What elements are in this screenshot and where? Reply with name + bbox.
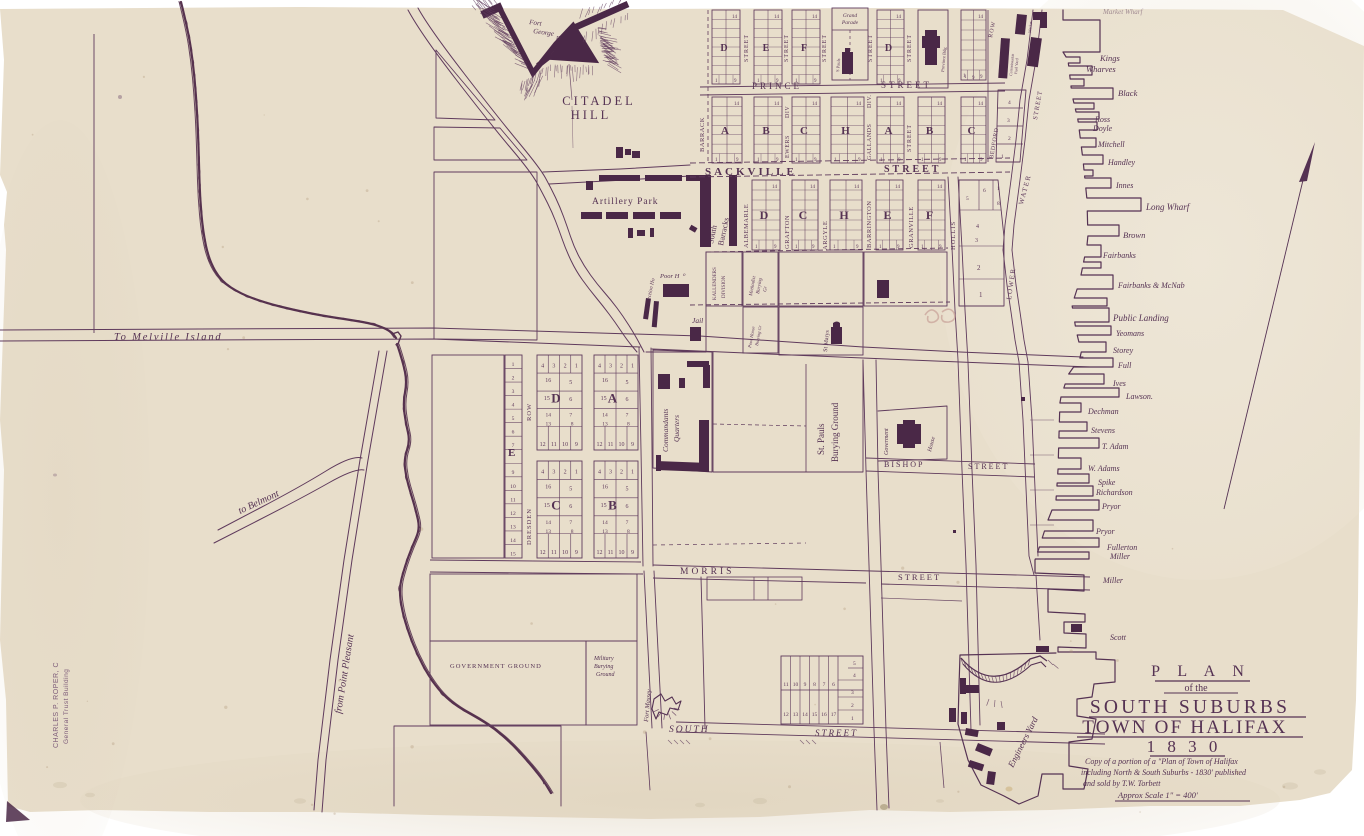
svg-text:5: 5: [512, 416, 515, 422]
svg-text:Goverment: Goverment: [884, 428, 890, 455]
svg-text:Brown: Brown: [1123, 230, 1145, 240]
svg-text:10: 10: [510, 484, 516, 490]
svg-text:Dechman: Dechman: [1087, 407, 1119, 416]
svg-text:2: 2: [620, 470, 623, 476]
svg-text:14: 14: [896, 15, 902, 20]
svg-text:13: 13: [793, 712, 799, 718]
svg-text:16: 16: [602, 378, 608, 384]
svg-text:16: 16: [821, 712, 827, 718]
svg-text:1: 1: [979, 291, 983, 299]
svg-text:3: 3: [512, 389, 515, 395]
svg-text:12: 12: [510, 511, 516, 517]
svg-text:4: 4: [541, 470, 544, 476]
svg-text:Ground: Ground: [596, 672, 615, 678]
svg-text:Scott: Scott: [1110, 633, 1127, 642]
svg-text:Miller: Miller: [1102, 576, 1124, 585]
svg-text:Approx Scale 1" = 400': Approx Scale 1" = 400': [1117, 790, 1198, 800]
svg-text:14: 14: [772, 185, 778, 190]
svg-text:9: 9: [575, 550, 578, 556]
svg-text:14: 14: [774, 15, 780, 20]
svg-text:10: 10: [562, 550, 568, 556]
svg-text:A: A: [885, 125, 893, 137]
svg-text:ARGYLE: ARGYLE: [822, 221, 829, 250]
svg-text:9: 9: [804, 682, 807, 688]
svg-text:16: 16: [545, 484, 551, 490]
svg-text:13: 13: [602, 421, 608, 427]
svg-text:DIV: DIV: [785, 106, 791, 118]
svg-text:DIV.: DIV.: [867, 95, 873, 108]
svg-text:2: 2: [851, 703, 854, 709]
svg-text:10: 10: [619, 550, 625, 556]
svg-text:H: H: [841, 125, 850, 137]
svg-text:3: 3: [552, 470, 555, 476]
svg-text:1 8 3 0: 1 8 3 0: [1147, 737, 1222, 756]
svg-text:6: 6: [626, 397, 629, 403]
svg-text:3: 3: [609, 363, 612, 369]
svg-text:TOWN OF HALIFAX: TOWN OF HALIFAX: [1082, 717, 1287, 738]
svg-text:Doyle: Doyle: [1092, 124, 1113, 133]
svg-text:E: E: [883, 208, 891, 222]
svg-text:2: 2: [564, 470, 567, 476]
svg-text:5: 5: [569, 380, 572, 386]
svg-text:Full: Full: [1117, 361, 1132, 370]
svg-text:To Melville Island: To Melville Island: [114, 332, 222, 343]
svg-text:7: 7: [823, 682, 826, 688]
svg-text:8: 8: [627, 529, 630, 535]
svg-text:12: 12: [597, 550, 603, 556]
svg-text:15: 15: [544, 503, 550, 509]
svg-text:12: 12: [783, 712, 789, 718]
svg-text:14: 14: [856, 102, 862, 107]
svg-text:STREET: STREET: [907, 124, 913, 152]
svg-text:Storey: Storey: [1113, 346, 1134, 355]
svg-text:STREET: STREET: [744, 34, 750, 62]
svg-text:STREET: STREET: [815, 728, 858, 738]
svg-text:7: 7: [569, 413, 572, 419]
svg-text:11: 11: [608, 442, 614, 448]
svg-text:SOUTH SUBURBS: SOUTH SUBURBS: [1090, 697, 1290, 718]
svg-text:14: 14: [810, 185, 816, 190]
svg-text:Copy of a portion of a "Plan o: Copy of a portion of a "Plan of Town of …: [1085, 757, 1238, 766]
svg-text:14: 14: [510, 538, 516, 544]
svg-text:Pryor: Pryor: [1101, 502, 1122, 511]
svg-text:9: 9: [631, 442, 634, 448]
svg-text:15: 15: [544, 396, 550, 402]
svg-text:D: D: [555, 36, 561, 42]
svg-text:2: 2: [620, 363, 623, 369]
svg-text:Market Wharf: Market Wharf: [1102, 8, 1144, 16]
svg-text:W. Adams: W. Adams: [1088, 464, 1120, 473]
svg-text:13: 13: [602, 529, 608, 535]
svg-text:4: 4: [512, 403, 515, 409]
svg-text:4: 4: [541, 363, 544, 369]
svg-text:1: 1: [575, 363, 578, 369]
svg-text:SOUTH: SOUTH: [669, 725, 710, 735]
svg-text:of the: of the: [1184, 683, 1208, 694]
svg-text:P L A N: P L A N: [1151, 663, 1251, 680]
svg-text:7: 7: [626, 520, 629, 526]
svg-text:GALLANDS: GALLANDS: [867, 124, 873, 160]
svg-text:ALBEMARLE: ALBEMARLE: [743, 204, 750, 248]
svg-text:Quarters: Quarters: [672, 415, 681, 442]
svg-text:Fairbanks & McNab: Fairbanks & McNab: [1117, 281, 1185, 290]
svg-text:Jail: Jail: [692, 316, 703, 325]
svg-text:1: 1: [631, 470, 634, 476]
svg-text:Parade: Parade: [841, 20, 859, 26]
svg-text:8: 8: [997, 201, 1000, 207]
svg-text:Stevens: Stevens: [1091, 426, 1115, 435]
svg-text:Yeomans: Yeomans: [1116, 329, 1144, 338]
svg-text:14: 14: [978, 15, 984, 20]
svg-text:B: B: [926, 125, 934, 137]
svg-text:16: 16: [545, 378, 551, 384]
svg-text:STREET: STREET: [868, 34, 874, 62]
svg-text:E: E: [763, 43, 770, 54]
svg-text:including North & South Suburb: including North & South Suburbs - 1830' …: [1081, 768, 1247, 777]
svg-text:5: 5: [966, 196, 969, 202]
svg-text:CITADEL: CITADEL: [562, 94, 635, 108]
svg-text:8: 8: [571, 421, 574, 427]
svg-text:12: 12: [540, 550, 546, 556]
svg-text:A: A: [608, 391, 618, 406]
svg-text:7: 7: [626, 413, 629, 419]
svg-text:T. Adam: T. Adam: [1102, 442, 1129, 451]
svg-text:14: 14: [937, 185, 943, 190]
svg-text:6: 6: [626, 504, 629, 510]
svg-text:Handley: Handley: [1107, 158, 1136, 167]
svg-text:C: C: [551, 498, 560, 513]
svg-text:13: 13: [546, 529, 552, 535]
svg-text:10: 10: [793, 682, 799, 688]
svg-text:3: 3: [975, 238, 978, 244]
svg-text:12: 12: [540, 442, 546, 448]
svg-text:STREET: STREET: [907, 34, 913, 62]
svg-text:2: 2: [1008, 136, 1011, 142]
svg-text:Artillery Park: Artillery Park: [592, 197, 659, 207]
svg-text:11: 11: [551, 550, 557, 556]
svg-text:6: 6: [569, 504, 572, 510]
svg-text:11: 11: [510, 497, 516, 503]
svg-text:MORRIS: MORRIS: [680, 567, 734, 577]
svg-text:GRANVILLE: GRANVILLE: [908, 206, 915, 248]
svg-text:4: 4: [976, 224, 979, 230]
svg-text:15: 15: [510, 551, 516, 557]
svg-text:1: 1: [851, 716, 854, 722]
svg-text:3: 3: [609, 470, 612, 476]
svg-text:4: 4: [598, 363, 601, 369]
svg-text:STREET: STREET: [784, 34, 790, 62]
svg-text:13: 13: [546, 421, 552, 427]
svg-text:4: 4: [1008, 100, 1011, 106]
svg-text:Ross: Ross: [1094, 115, 1110, 124]
svg-text:PRINCE: PRINCE: [752, 81, 802, 91]
svg-text:1: 1: [575, 470, 578, 476]
svg-text:11: 11: [783, 682, 789, 688]
svg-text:3: 3: [552, 363, 555, 369]
svg-text:GRAFTON: GRAFTON: [784, 215, 791, 249]
svg-text:Lawson.: Lawson.: [1125, 392, 1153, 401]
svg-text:4: 4: [853, 673, 856, 679]
svg-text:DIVISION: DIVISION: [722, 275, 727, 298]
svg-text:STREET: STREET: [881, 80, 932, 90]
svg-text:Spike: Spike: [1098, 478, 1116, 487]
svg-text:GOVERNMENT GROUND: GOVERNMENT GROUND: [450, 663, 542, 670]
svg-text:EWERS: EWERS: [785, 135, 791, 158]
svg-text:Grand: Grand: [843, 13, 858, 19]
svg-text:8: 8: [571, 529, 574, 535]
svg-text:Burying Ground: Burying Ground: [830, 402, 840, 462]
svg-text:1: 1: [512, 362, 515, 368]
svg-text:13: 13: [510, 524, 516, 530]
svg-text:KALLENDERS: KALLENDERS: [713, 267, 718, 300]
svg-text:Commandants: Commandants: [661, 409, 670, 452]
svg-text:9: 9: [631, 550, 634, 556]
svg-text:9: 9: [575, 442, 578, 448]
svg-text:STREET: STREET: [968, 462, 1009, 471]
svg-text:C: C: [968, 125, 976, 137]
svg-text:Public Landing: Public Landing: [1112, 313, 1169, 323]
svg-text:Fairbanks: Fairbanks: [1102, 251, 1136, 260]
svg-text:BARRINGTON: BARRINGTON: [866, 201, 873, 249]
svg-text:15: 15: [812, 712, 818, 718]
svg-text:11: 11: [551, 442, 557, 448]
svg-text:6: 6: [832, 682, 835, 688]
svg-text:H: H: [839, 208, 849, 222]
svg-text:STREET: STREET: [822, 34, 828, 62]
svg-text:Fullerton: Fullerton: [1106, 543, 1137, 552]
svg-text:6: 6: [983, 188, 986, 194]
svg-text:Innes: Innes: [1115, 181, 1133, 190]
svg-text:6: 6: [512, 430, 515, 436]
svg-text:Pryor: Pryor: [1095, 527, 1116, 536]
svg-text:F: F: [801, 43, 807, 54]
svg-text:D: D: [551, 391, 560, 406]
svg-text:BARRACK: BARRACK: [699, 117, 706, 152]
svg-text:10: 10: [562, 442, 568, 448]
svg-text:SACKVILLE: SACKVILLE: [705, 166, 797, 178]
svg-text:14: 14: [732, 15, 738, 20]
svg-text:17: 17: [831, 712, 837, 718]
svg-text:1: 1: [631, 363, 634, 369]
svg-text:14: 14: [978, 102, 984, 107]
svg-text:Gr: Gr: [763, 286, 769, 292]
svg-text:14: 14: [774, 102, 780, 107]
svg-text:14: 14: [896, 102, 902, 107]
svg-text:14: 14: [854, 185, 860, 190]
svg-text:CHARLES P. ROPER, C: CHARLES P. ROPER, C: [53, 662, 60, 748]
svg-text:D: D: [760, 208, 769, 222]
svg-text:B: B: [762, 125, 770, 137]
svg-text:12: 12: [597, 442, 603, 448]
svg-text:5: 5: [569, 486, 572, 492]
svg-text:16: 16: [602, 484, 608, 490]
svg-text:St. Pauls: St. Pauls: [816, 423, 826, 455]
svg-text:A: A: [721, 125, 729, 137]
svg-text:14: 14: [802, 712, 808, 718]
svg-text:10: 10: [619, 442, 625, 448]
svg-text:F: F: [926, 208, 933, 222]
svg-text:2: 2: [512, 376, 515, 382]
svg-text:Mitchell: Mitchell: [1097, 140, 1125, 149]
svg-text:8: 8: [627, 421, 630, 427]
svg-text:D: D: [720, 43, 727, 54]
svg-text:STREET: STREET: [884, 164, 941, 175]
svg-text:Burying: Burying: [594, 664, 613, 670]
svg-text:STREET: STREET: [898, 572, 941, 582]
svg-text:Long Wharf: Long Wharf: [1145, 202, 1191, 212]
svg-text:14: 14: [602, 520, 608, 526]
svg-text:11: 11: [608, 550, 614, 556]
svg-text:2: 2: [977, 264, 981, 272]
svg-text:Poor H: Poor H: [659, 273, 680, 280]
svg-text:3: 3: [1007, 118, 1010, 124]
svg-text:14: 14: [546, 520, 552, 526]
svg-text:5: 5: [626, 486, 629, 492]
svg-text:Richardson: Richardson: [1095, 488, 1133, 497]
svg-text:Wharves: Wharves: [1086, 64, 1116, 74]
svg-text:HILL: HILL: [571, 108, 611, 122]
svg-text:ROW: ROW: [526, 403, 533, 421]
svg-text:Kings: Kings: [1099, 53, 1121, 63]
svg-text:Ives: Ives: [1112, 379, 1126, 388]
svg-text:DRESDEN: DRESDEN: [526, 508, 533, 545]
svg-text:15: 15: [601, 396, 607, 402]
svg-text:14: 14: [546, 413, 552, 419]
svg-text:BISHOP: BISHOP: [884, 460, 924, 469]
svg-text:5: 5: [853, 661, 856, 667]
svg-text:C: C: [800, 125, 808, 137]
svg-text:C: C: [799, 208, 808, 222]
svg-text:2: 2: [564, 363, 567, 369]
svg-text:General Trust Building: General Trust Building: [63, 669, 70, 744]
svg-text:14: 14: [812, 102, 818, 107]
svg-text:Military: Military: [593, 656, 614, 662]
svg-text:9: 9: [512, 470, 515, 476]
svg-text:14: 14: [895, 185, 901, 190]
svg-text:4: 4: [598, 470, 601, 476]
svg-text:7: 7: [569, 520, 572, 526]
svg-text:B: B: [608, 498, 617, 513]
svg-text:6: 6: [569, 397, 572, 403]
svg-text:14: 14: [734, 102, 740, 107]
svg-text:14: 14: [937, 102, 943, 107]
svg-text:Miller: Miller: [1109, 552, 1131, 561]
svg-text:and sold by T.W. Torbett: and sold by T.W. Torbett: [1083, 779, 1161, 788]
svg-text:15: 15: [601, 503, 607, 509]
svg-text:3: 3: [851, 690, 854, 696]
svg-text:1: 1: [1001, 154, 1004, 160]
svg-text:8: 8: [813, 682, 816, 688]
svg-text:D: D: [885, 43, 892, 54]
svg-text:E: E: [508, 447, 515, 459]
svg-text:14: 14: [602, 413, 608, 419]
svg-text:Black: Black: [1118, 88, 1138, 98]
svg-text:5: 5: [626, 380, 629, 386]
svg-text:14: 14: [812, 15, 818, 20]
